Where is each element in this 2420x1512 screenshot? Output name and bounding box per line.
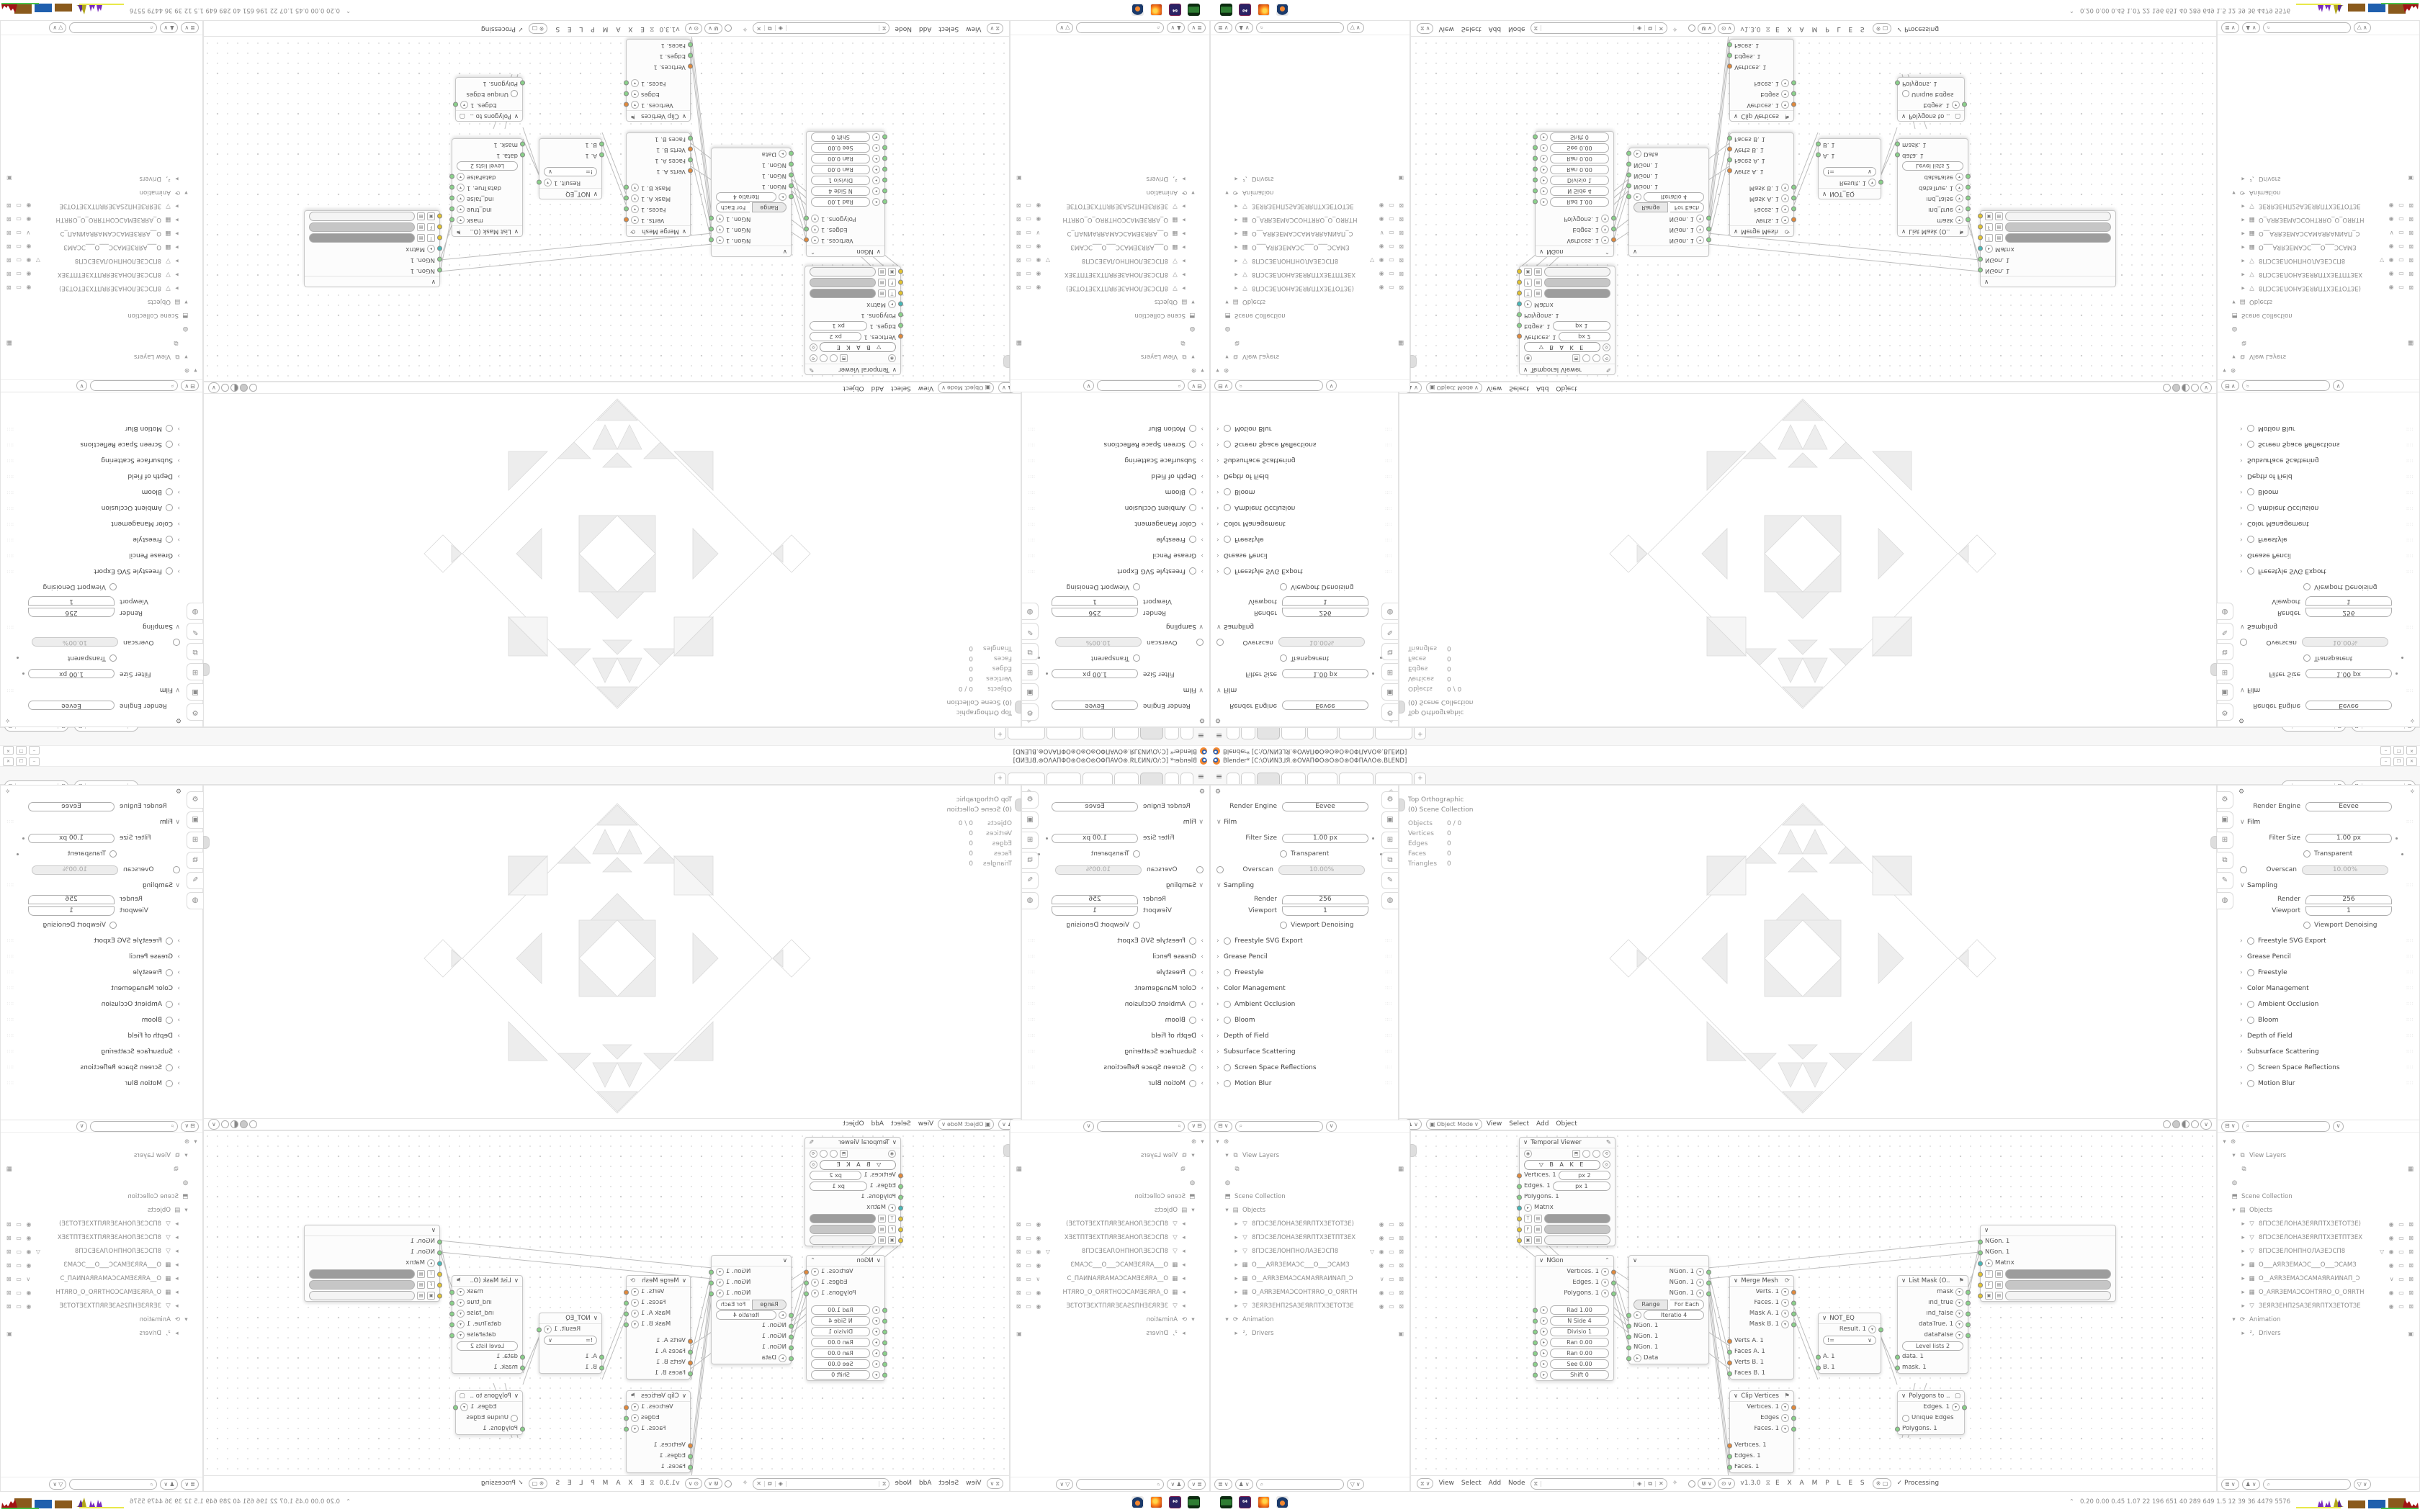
outliner-row[interactable]: ▸ ▽ 8ПƆСЗЕЛОНАЗЕЯRПТХЗЕТПТЗЕХ ◉ ▭ ⊠: [1, 267, 202, 281]
outliner-row[interactable]: ◍: [1211, 1176, 1410, 1190]
drag-dots-icon[interactable]: ∷∷: [1028, 474, 1035, 478]
node-socket[interactable]: [1978, 246, 1983, 251]
node-row-in[interactable]: B. 1: [1819, 1362, 1881, 1373]
node-row-in[interactable]: NGon. 1: [712, 159, 791, 170]
expand-caret[interactable]: [1216, 521, 1224, 527]
socket-menu-icon[interactable]: ▸: [872, 1306, 880, 1314]
node-row-field[interactable]: ▸Ran 0.00: [807, 164, 884, 175]
node-row-in[interactable]: Polygons. 1: [1898, 78, 1964, 89]
outliner-row[interactable]: ▸ ▽ ЗЕЯRЗЕНП2SАЗЕЯRПТХЗЕТОТЗЕ ◉ ▭ ⊠: [1, 1300, 202, 1313]
node-value-field[interactable]: N Side 4: [811, 186, 870, 196]
row-label[interactable]: O__АЯRЗЕМАƆСАМАЯRАИNАП_Ɔ: [60, 230, 163, 236]
properties-row[interactable]: Viewport Viewport 1 ∷∷: [2234, 905, 2419, 917]
checkbox[interactable]: [2247, 1064, 2254, 1071]
drag-dots-icon[interactable]: ∷∷: [1028, 1034, 1035, 1038]
keyframe-dot[interactable]: [17, 657, 19, 660]
node-socket[interactable]: [1791, 196, 1796, 201]
swatch-icon[interactable]: ▤: [1534, 1225, 1542, 1233]
row-caret[interactable]: ▸: [1180, 1221, 1188, 1228]
row-visibility-icons[interactable]: ◉ ▭ ⊠: [1010, 203, 1041, 209]
outliner-row[interactable]: ⬒ Scene Collection: [1211, 1190, 1410, 1204]
row-visibility-icons[interactable]: ◉ ▭ ⊠: [1, 203, 31, 209]
node-socket[interactable]: [1706, 216, 1711, 221]
expand-caret[interactable]: [2240, 568, 2247, 575]
node-value-field[interactable]: Ran 0.00: [811, 1349, 870, 1358]
node-socket[interactable]: [1978, 214, 1983, 219]
node-row-button[interactable]: Level lists 2: [452, 161, 522, 171]
refresh-icon[interactable]: ⟲: [810, 1150, 817, 1158]
viewport-menu-item[interactable]: View: [1487, 384, 1502, 391]
node-value-field[interactable]: See 0.00: [1550, 143, 1609, 153]
row-label[interactable]: Scene Collection: [2239, 1194, 2293, 1200]
app-menu-icon[interactable]: ≡: [1216, 773, 1222, 780]
checkbox[interactable]: [1189, 969, 1196, 976]
section-label[interactable]: Freestyle: [1156, 970, 1186, 976]
processing-check-icon[interactable]: ✓: [518, 25, 524, 32]
node-row-out[interactable]: Edges. 1▾: [807, 1277, 884, 1288]
node-row-in[interactable]: Faces B. 1: [627, 1368, 690, 1379]
node-socket[interactable]: [898, 1194, 903, 1200]
node-socket[interactable]: [437, 235, 442, 240]
properties-row[interactable]: Freestyle Freestyle ∷∷: [1211, 965, 1398, 981]
node-menu-item[interactable]: Node: [895, 1480, 912, 1487]
node-menu-item[interactable]: Add: [919, 1480, 931, 1487]
node-value-field[interactable]: Shift 0: [811, 132, 870, 142]
socket-menu-icon[interactable]: ▸: [1540, 187, 1548, 195]
refresh-icon[interactable]: ⟲: [810, 354, 817, 362]
property-value[interactable]: 1: [1052, 906, 1138, 916]
node-menu-item[interactable]: View: [966, 25, 981, 32]
node-socket[interactable]: [1966, 174, 1971, 179]
socket-menu-icon[interactable]: ▾: [716, 215, 724, 222]
checkbox[interactable]: [1280, 654, 1287, 662]
drag-dots-icon[interactable]: ∷∷: [6, 505, 14, 510]
viewport-menu-item[interactable]: Object: [1556, 384, 1577, 391]
properties-row[interactable]: Overscan Overscan 10.00% ∷∷: [2234, 634, 2419, 650]
node-row-swatch[interactable]: F▤: [805, 277, 900, 288]
node-row-out[interactable]: NGon. 1▾: [712, 213, 791, 224]
node-collapse-icon[interactable]: ∨: [1523, 1140, 1528, 1146]
node-row-gap[interactable]: [539, 161, 601, 166]
row-caret[interactable]: ▸: [2239, 1276, 2247, 1282]
checkbox[interactable]: [166, 441, 173, 448]
row-label[interactable]: Objects: [1155, 1207, 1180, 1214]
socket-menu-icon[interactable]: ▸: [1524, 300, 1532, 308]
node-row-in[interactable]: Faces. 1: [1730, 1462, 1793, 1472]
node-row-swatch[interactable]: ▣▤: [1520, 266, 1615, 277]
checkbox[interactable]: [1224, 1001, 1231, 1008]
properties-row[interactable]: Freestyle Freestyle ∷∷: [2234, 965, 2419, 981]
node-row-in[interactable]: NGon. 1: [1629, 1342, 1708, 1353]
pin-icon[interactable]: ✧: [2409, 789, 2415, 796]
snap-mode-dropdown[interactable]: ⊙∨: [685, 1478, 703, 1489]
node-row-in[interactable]: NGon. 1: [1981, 265, 2115, 276]
node-socket[interactable]: [520, 1354, 525, 1359]
node-value-field[interactable]: Iteratio 4: [1644, 1310, 1704, 1320]
row-visibility-icons[interactable]: ◉ ▭ ⊠: [2389, 1236, 2419, 1241]
swatch-icon[interactable]: ▤: [1995, 223, 2003, 231]
node-collapse-icon[interactable]: ∨: [593, 1315, 598, 1322]
drag-dots-icon[interactable]: ∷∷: [6, 986, 14, 991]
viewport-menu-item[interactable]: Select: [1509, 384, 1529, 391]
node-row-out[interactable]: Vertices. 1▾: [807, 235, 884, 246]
section-label[interactable]: Screen Space Reflections: [1103, 441, 1186, 448]
expand-caret[interactable]: [2240, 489, 2247, 495]
socket-menu-icon[interactable]: ▾: [457, 1331, 465, 1339]
node-clip-vertices[interactable]: ∨Clip Vertices⚑Vertices. 1▾Edges▾Faces. …: [1729, 39, 1794, 122]
node-row-out[interactable]: Vertices. 1▾: [1730, 1402, 1793, 1413]
pin-icon[interactable]: ✧: [1672, 25, 1678, 32]
node-socket[interactable]: [1727, 64, 1732, 69]
snap-mode-dropdown[interactable]: ⊙∨: [1718, 1478, 1736, 1489]
footer-mode-dropdown[interactable]: ♟∨: [1167, 22, 1185, 33]
node-row-swatch[interactable]: F▤: [1981, 1279, 2115, 1290]
expand-caret[interactable]: [173, 1033, 180, 1040]
expand-caret[interactable]: [1196, 426, 1204, 432]
row-label[interactable]: Drivers: [1146, 1331, 1170, 1337]
node-row-in[interactable]: Edges. 1px 1: [805, 1181, 900, 1192]
outliner-row[interactable]: ⧉ ▦: [1211, 1163, 1410, 1176]
expand-caret[interactable]: [173, 1017, 180, 1024]
properties-row[interactable]: Film Film ∷∷: [1022, 814, 1209, 830]
node-row-swatch[interactable]: T▤: [1520, 288, 1615, 299]
socket-menu-icon[interactable]: ▾: [1601, 1290, 1609, 1297]
node-row-out[interactable]: ind_false▾: [1898, 1308, 1968, 1319]
maximize-button[interactable]: ❐: [2393, 746, 2404, 755]
node-ngon[interactable]: ∨NGon⌃Vertices. 1▾Edges. 1▾Polygons. 1▾▸…: [806, 131, 885, 257]
node-row-field[interactable]: ▸Ran 0.00: [807, 1348, 884, 1359]
checkbox[interactable]: [2303, 850, 2311, 858]
node-row-field[interactable]: ▸Shift 0: [1536, 132, 1613, 143]
section-label[interactable]: Depth of Field: [1151, 473, 1196, 480]
node-collapse-icon[interactable]: ∨: [1633, 1258, 1637, 1264]
section-label[interactable]: Freestyle: [1156, 536, 1186, 543]
color-swatch[interactable]: [1544, 278, 1610, 287]
properties-row[interactable]: Sampling Sampling ∷∷: [1211, 878, 1398, 894]
outliner-row[interactable]: ▾ ▤ Objects: [1211, 294, 1410, 308]
node-value-field[interactable]: Iteratio 4: [716, 192, 776, 202]
viewport-menu-item[interactable]: Object: [843, 384, 864, 391]
workspace-tab[interactable]: [1257, 773, 1280, 784]
node-socket[interactable]: [1611, 238, 1616, 243]
outliner-row[interactable]: ▾ ⊛: [1, 1135, 202, 1149]
footer-search-input[interactable]: ⌕: [69, 22, 157, 33]
node-row-in[interactable]: A. 1: [1819, 1351, 1881, 1362]
socket-menu-icon[interactable]: ▸: [872, 1328, 880, 1336]
socket-menu-icon[interactable]: ▾: [631, 205, 639, 213]
properties-row[interactable]: Overscan Overscan 10.00% ∷∷: [1211, 634, 1398, 650]
property-value[interactable]: 256: [2305, 895, 2392, 904]
section-label[interactable]: Depth of Field: [1224, 473, 1269, 480]
row-visibility-icons[interactable]: ◉ ▭ ⊠: [2389, 203, 2419, 209]
row-visibility-icons[interactable]: ∨ ▭ ⊠: [2390, 230, 2419, 236]
socket-menu-icon[interactable]: ▾: [716, 1290, 724, 1297]
footer-filter-dropdown[interactable]: ▽∨: [49, 1479, 66, 1490]
row-caret[interactable]: ▸: [173, 1248, 181, 1255]
checkbox[interactable]: [2247, 567, 2254, 575]
node-row-out[interactable]: Mask B. 1▾: [1730, 182, 1793, 193]
viewport-menu-item[interactable]: Object: [1556, 1121, 1577, 1128]
node-row-in[interactable]: ▸Matrix: [1520, 299, 1615, 310]
section-label[interactable]: Sampling: [1166, 883, 1196, 889]
expand-caret[interactable]: [1216, 441, 1224, 448]
viewport-menu-item[interactable]: Add: [1536, 384, 1549, 391]
section-label[interactable]: Freestyle SVG Export: [2258, 938, 2326, 945]
row-label[interactable]: Scene Collection: [1134, 312, 1188, 318]
drag-dots-icon[interactable]: ∷∷: [6, 474, 14, 478]
row-label[interactable]: Objects: [2247, 1207, 2272, 1214]
node-row-in[interactable]: Faces B. 1: [627, 133, 690, 144]
row-label[interactable]: View Layers: [1240, 1153, 1279, 1159]
properties-row[interactable]: Depth of Field Depth of Field ∷∷: [1022, 1028, 1209, 1044]
socket-menu-icon[interactable]: ▾: [1955, 205, 1963, 213]
footer-search-input[interactable]: ⌕: [2263, 22, 2351, 33]
node-row-tabs[interactable]: RangeFor Each: [712, 202, 791, 213]
node-viewer[interactable]: ∨NGon. 1▾NGon. 1▾NGon. 1▾RangeFor Each▸I…: [1628, 148, 1709, 257]
geometry-node-editor[interactable]: ∨Temporal Viewer✎◉⬒⟲▽ B A K E◎Vertices. …: [1410, 20, 2217, 382]
node-clip-vertices[interactable]: ∨Clip Vertices⚑Vertices. 1▾Edges▾Faces. …: [1729, 1390, 1794, 1473]
row-caret[interactable]: ▸: [2239, 230, 2247, 236]
row-caret[interactable]: ▸: [1232, 271, 1240, 277]
section-label[interactable]: Ambient Occlusion: [102, 1002, 162, 1008]
expand-caret[interactable]: [1216, 883, 1224, 889]
drag-dots-icon[interactable]: ∷∷: [2406, 1081, 2414, 1086]
node-row-swatch[interactable]: F▤: [305, 1279, 439, 1290]
unlink-icon[interactable]: ✕: [1655, 1481, 1667, 1487]
socket-menu-icon[interactable]: ▾: [1955, 173, 1963, 181]
drag-dots-icon[interactable]: ∷∷: [1385, 474, 1392, 478]
socket-field[interactable]: px 1: [810, 321, 867, 330]
checkbox[interactable]: [2303, 654, 2311, 662]
node-menu-item[interactable]: Select: [938, 1480, 959, 1487]
collapse-stats-icon[interactable]: ⌃: [346, 7, 351, 14]
swatch-icon[interactable]: ▤: [878, 1236, 886, 1244]
properties-row[interactable]: Filter Size Filter Size 1.00 px ∷∷: [2234, 830, 2419, 846]
drag-dots-icon[interactable]: ∷∷: [2406, 1034, 2414, 1038]
expand-caret[interactable]: [2240, 954, 2247, 960]
footer-filter-dropdown[interactable]: ▽∨: [1347, 1479, 1364, 1490]
property-value[interactable]: Eevee: [1282, 802, 1368, 811]
reset-icon[interactable]: ◎: [1603, 343, 1610, 351]
node-row-out[interactable]: Vertices. 1▾: [627, 99, 690, 110]
properties-row[interactable]: Sampling Sampling ∷∷: [2234, 878, 2419, 894]
socket-menu-icon[interactable]: ▸: [888, 300, 896, 308]
expand-caret[interactable]: [1216, 1049, 1224, 1056]
row-caret[interactable]: ▸: [1180, 202, 1188, 209]
row-visibility-icons[interactable]: ◉ ▭ ⊠: [1, 217, 31, 222]
node-socket[interactable]: [1978, 1250, 1983, 1255]
properties-row[interactable]: Depth of Field Depth of Field ∷∷: [2234, 1028, 2419, 1044]
node-socket[interactable]: [1611, 216, 1616, 221]
node-socket[interactable]: [437, 214, 442, 219]
drag-dots-icon[interactable]: ∷∷: [1028, 1066, 1035, 1070]
drag-dots-icon[interactable]: ∷∷: [1028, 1081, 1035, 1086]
node-row-out[interactable]: Edges▾: [1730, 89, 1793, 99]
properties-row[interactable]: Transparent Transparent ∷∷: [1022, 650, 1209, 666]
properties-row[interactable]: Viewport Viewport 1 ∷∷: [1, 905, 186, 917]
node-socket[interactable]: [437, 1282, 442, 1287]
node-row-in[interactable]: Faces A. 1: [627, 1346, 690, 1357]
section-label[interactable]: Motion Blur: [2258, 426, 2295, 432]
properties-row[interactable]: Render Engine Render Engine Eevee ∷∷: [1, 798, 186, 814]
display-mode-dropdown[interactable]: ⊟∨: [1214, 1121, 1232, 1132]
properties-row[interactable]: Viewport Viewport 1 ∷∷: [1211, 595, 1398, 607]
node-row-in[interactable]: ▸Data: [1629, 1353, 1708, 1364]
node-row-out[interactable]: dataFalse▾: [1898, 171, 1968, 182]
row-caret[interactable]: ▸: [173, 202, 181, 209]
workspace-tab[interactable]: [1281, 773, 1306, 784]
footer-mode-dropdown[interactable]: ♟∨: [1235, 1479, 1253, 1490]
node-row-out[interactable]: Edges. 1▾: [456, 1402, 522, 1413]
node-value-field[interactable]: Rad 1.00: [1550, 1305, 1609, 1315]
checkbox[interactable]: [109, 922, 117, 929]
properties-tab[interactable]: ▣: [1381, 811, 1398, 829]
outliner-row[interactable]: ▸ ², Drivers ▣: [1211, 1327, 1410, 1341]
outliner-row[interactable]: ▸ ², Drivers ▣: [2218, 171, 2419, 185]
properties-row[interactable]: Transparent Transparent ∷∷: [1, 846, 186, 862]
expand-caret[interactable]: [2240, 552, 2247, 559]
node-row-out[interactable]: NGon. 1▾: [712, 1277, 791, 1288]
node-row-out[interactable]: ind_false▾: [452, 193, 522, 204]
node-value-field[interactable]: See 0.00: [1550, 1359, 1609, 1369]
node-row-out[interactable]: ind_true▾: [1898, 1297, 1968, 1308]
node-row-in[interactable]: Faces B. 1: [1730, 1368, 1793, 1379]
section-label[interactable]: Depth of Field: [1151, 1033, 1196, 1040]
row-label[interactable]: 8ПƆСЗЕЛОНАЗЕЯRПТХЗЕТПТЗЕХ: [1065, 271, 1170, 277]
outliner-row[interactable]: ▸ ², Drivers ▣: [1211, 171, 1410, 185]
outliner-row[interactable]: ⧉ ▦: [1211, 336, 1410, 349]
node-row-in[interactable]: Faces A. 1: [627, 155, 690, 166]
node-row-in[interactable]: Verts A. 1: [1730, 166, 1793, 176]
node-socket[interactable]: [709, 1280, 714, 1285]
node-socket[interactable]: [898, 280, 903, 285]
socket-menu-icon[interactable]: ▾: [1601, 225, 1609, 233]
node-row-in[interactable]: Edges. 1px 1: [805, 320, 900, 331]
properties-row[interactable]: Color Management Color Management ∷∷: [1211, 516, 1398, 531]
node-row-gap[interactable]: [627, 1434, 690, 1440]
socket-menu-icon[interactable]: ▾: [1781, 1310, 1789, 1318]
row-visibility-icons[interactable]: ◉ ▭ ⊠: [1010, 1222, 1041, 1228]
node-socket[interactable]: [789, 184, 794, 189]
node-row-gap[interactable]: [627, 1330, 690, 1336]
row-visibility-icons[interactable]: ◉ ▭ ⊠: [1379, 203, 1410, 209]
outliner-row[interactable]: ▸ ▽ ЗЕЯRЗЕНП2SАЗЕЯRПТХЗЕТОТЗЕ ◉ ▭ ⊠: [1, 199, 202, 212]
expand-caret[interactable]: [1216, 624, 1224, 630]
node-socket[interactable]: [1978, 1272, 1983, 1277]
section-label[interactable]: Screen Space Reflections: [1103, 1065, 1186, 1071]
node-temporal-viewer[interactable]: ∨Temporal Viewer✎◉⬒⟲▽ B A K E◎Vertices. …: [805, 266, 901, 375]
drag-dots-icon[interactable]: ∷∷: [1385, 955, 1392, 959]
section-label[interactable]: Grease Pencil: [1152, 552, 1196, 559]
firefox-app-icon[interactable]: [1150, 1496, 1162, 1508]
node-socket[interactable]: [1966, 1322, 1971, 1327]
node-row-out[interactable]: NGon. 1▾: [712, 1288, 791, 1299]
socket-menu-icon[interactable]: ▸: [1633, 1311, 1641, 1319]
properties-row[interactable]: Overscan Overscan 10.00% ∷∷: [1211, 862, 1398, 878]
node-socket[interactable]: [1978, 268, 1983, 273]
editor-type-dropdown[interactable]: ⧖∨: [1417, 23, 1433, 34]
node-socket[interactable]: [1533, 189, 1538, 194]
drag-dots-icon[interactable]: ∷∷: [2406, 971, 2414, 975]
properties-row[interactable]: Bloom Bloom ∷∷: [1211, 1012, 1398, 1028]
add-workspace-button[interactable]: +: [994, 773, 1006, 784]
workspace-tab[interactable]: [1165, 728, 1179, 739]
section-label[interactable]: Subsurface Scattering: [101, 457, 173, 464]
section-label[interactable]: Color Management: [1134, 521, 1196, 527]
node-row-in[interactable]: B. 1: [1819, 139, 1881, 150]
node-row-out[interactable]: mask▾: [1898, 1287, 1968, 1297]
outliner-row[interactable]: ▸ ▽ 8ПƆСЗЕЛОНАЗЕЯRПТХЗЕТОТЗЕ) ◉ ▭ ⊠: [1010, 281, 1209, 294]
workspace-tab[interactable]: [1140, 728, 1163, 739]
node-socket[interactable]: [804, 1280, 809, 1285]
section-label[interactable]: Sampling: [1224, 883, 1254, 889]
row-visibility-icons[interactable]: ▽ ◉ ▭ ⊠: [2380, 258, 2419, 264]
node-button[interactable]: Level lists 2: [457, 161, 518, 171]
properties-row[interactable]: Subsurface Scattering Subsurface Scatter…: [1022, 1044, 1209, 1060]
row-label[interactable]: 8ПƆСЗЕЛОНАЗЕЯRПТХЗЕТПТЗЕХ: [2257, 1235, 2362, 1241]
node-socket[interactable]: [1517, 1216, 1522, 1221]
swatch-icon[interactable]: ▤: [417, 1292, 425, 1300]
node-socket[interactable]: [1626, 151, 1631, 156]
row-caret[interactable]: ▾: [1223, 1207, 1231, 1214]
node-socket[interactable]: [1517, 1173, 1522, 1178]
expand-caret[interactable]: [173, 536, 180, 543]
node-socket[interactable]: [1626, 162, 1631, 167]
node-collapse-icon[interactable]: ∨: [877, 1258, 881, 1264]
checkbox[interactable]: [2247, 504, 2254, 511]
property-value[interactable]: Eevee: [28, 701, 115, 711]
properties-row[interactable]: Render Engine Render Engine Eevee ∷∷: [1211, 798, 1398, 814]
outliner-filter-dropdown[interactable]: ∨: [2333, 1121, 2344, 1132]
socket-menu-icon[interactable]: ▾: [631, 1288, 639, 1296]
section-label[interactable]: Depth of Field: [127, 1033, 173, 1040]
node-socket[interactable]: [1517, 1227, 1522, 1232]
node-viewer[interactable]: ∨NGon. 1▾NGon. 1▾NGon. 1▾RangeFor Each▸I…: [711, 148, 792, 257]
collapse-stats-icon[interactable]: ⌃: [346, 1499, 351, 1506]
checkbox[interactable]: [1189, 441, 1196, 448]
eye-icon[interactable]: ◉: [1524, 354, 1532, 362]
property-value[interactable]: 1.00 px: [1282, 834, 1368, 843]
properties-row[interactable]: Subsurface Scattering Subsurface Scatter…: [1022, 452, 1209, 468]
node-row-field[interactable]: ▸N Side 4: [807, 186, 884, 197]
row-label[interactable]: 8ПƆСЗЕЛОНАЗЕЯRПТХЗЕТПТЗЕХ: [1250, 1235, 1355, 1241]
row-caret[interactable]: ▸: [2239, 1248, 2247, 1255]
node-socket[interactable]: [688, 147, 693, 152]
socket-menu-icon[interactable]: ▾: [1781, 1320, 1789, 1328]
node-row-in[interactable]: NGon. 1: [712, 181, 791, 192]
socket-menu-icon[interactable]: ▸: [1524, 1204, 1532, 1212]
properties-tab[interactable]: ⚙: [2217, 791, 2233, 809]
checkbox[interactable]: [1280, 850, 1287, 858]
expand-caret[interactable]: [1216, 489, 1224, 495]
expand-caret[interactable]: [1216, 938, 1224, 945]
property-value[interactable]: 10.00%: [32, 638, 118, 647]
keyframe-dot[interactable]: [1046, 673, 1048, 675]
properties-row[interactable]: Film Film ∷∷: [1, 682, 186, 698]
properties-row[interactable]: Grease Pencil Grease Pencil ∷∷: [1, 547, 186, 563]
node-row-out[interactable]: mask▾: [452, 215, 522, 225]
section-label[interactable]: Grease Pencil: [1224, 552, 1268, 559]
socket-menu-icon[interactable]: ▾: [1601, 1279, 1609, 1287]
socket-menu-icon[interactable]: ▾: [631, 184, 639, 192]
editor-type-dropdown[interactable]: ⧖∨: [987, 1478, 1003, 1489]
properties-row[interactable]: Overscan Overscan 10.00% ∷∷: [1022, 634, 1209, 650]
node-socket[interactable]: [1611, 1269, 1616, 1274]
node-socket[interactable]: [1978, 235, 1983, 240]
cube-icon[interactable]: ⬒: [1572, 354, 1580, 362]
node-socket[interactable]: [1791, 1311, 1796, 1316]
outliner-row[interactable]: ⧉ ▦: [1, 336, 202, 349]
